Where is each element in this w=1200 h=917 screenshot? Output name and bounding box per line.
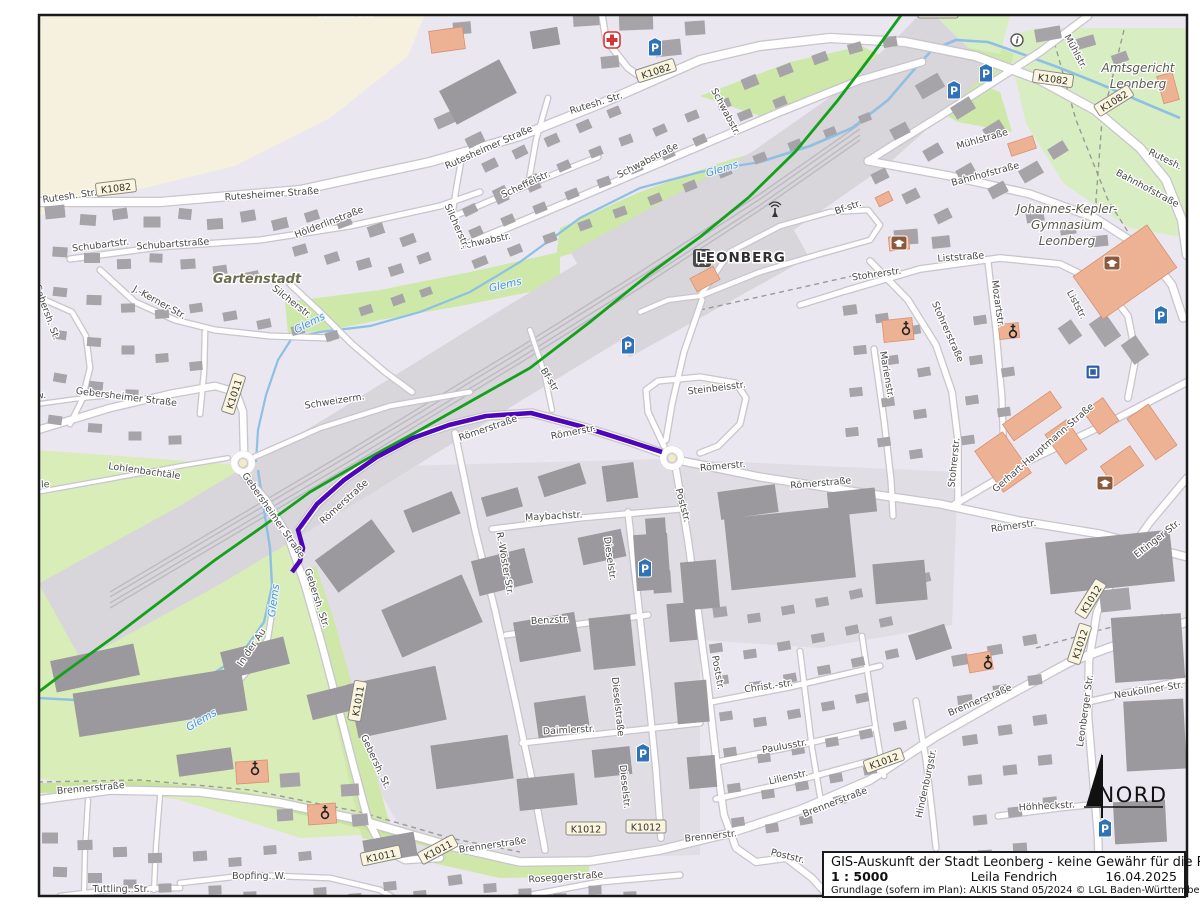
parking-icon: P — [639, 559, 652, 578]
svg-text:P: P — [950, 85, 958, 98]
roundabout — [232, 452, 254, 474]
place-label: Gymnasium — [1031, 218, 1103, 232]
road-label: Benzstr. — [531, 614, 570, 627]
svg-text:P: P — [639, 748, 647, 761]
parking-icon: P — [1155, 306, 1168, 325]
place-label: Leonberg — [1039, 234, 1096, 248]
town-label: Gartenstadt — [213, 272, 302, 287]
school-icon — [1104, 256, 1120, 270]
blue-square-icon — [1086, 365, 1100, 379]
school-icon — [891, 236, 907, 250]
parking-icon: P — [622, 336, 635, 355]
svg-text:P: P — [651, 42, 659, 55]
map-source-note: Grundlage (sofern im Plan): ALKIS Stand … — [831, 885, 1177, 896]
info-icon: i — [1011, 34, 1023, 46]
parking-icon: P — [1099, 819, 1112, 838]
place-label: Amtsgericht — [1100, 61, 1175, 75]
svg-text:P: P — [624, 340, 632, 353]
map-layers: PPPPPPPPiRütesh. Str.WhA ClausenmühleRut… — [2, 0, 1187, 908]
north-arrow-label: NORD — [1099, 783, 1168, 807]
svg-text:P: P — [1157, 310, 1165, 323]
parking-icon: P — [980, 64, 993, 83]
hospital-icon — [604, 32, 620, 48]
school-icon — [1097, 476, 1113, 490]
parking-icon: P — [948, 81, 961, 100]
svg-text:P: P — [1101, 823, 1109, 836]
map-author: Leila Fendrich — [941, 870, 1087, 884]
road-label: Bopfing. W. — [232, 871, 286, 882]
svg-text:P: P — [641, 563, 649, 576]
svg-text:K1012: K1012 — [571, 825, 601, 836]
gis-map-page: PPPPPPPPiRütesh. Str.WhA ClausenmühleRut… — [0, 0, 1200, 917]
map-scale: 1 : 5000 — [831, 870, 941, 884]
map-disclaimer: GIS-Auskunft der Stadt Leonberg - keine … — [831, 855, 1177, 870]
map-date: 16.04.2025 — [1087, 870, 1177, 884]
parking-icon: P — [649, 38, 662, 57]
svg-text:K1012: K1012 — [631, 823, 661, 834]
place-label: Johannes-Kepler- — [1015, 202, 1118, 216]
road-label: Tuttling. Str. — [91, 884, 149, 895]
map-canvas[interactable]: PPPPPPPPiRütesh. Str.WhA ClausenmühleRut… — [0, 0, 1200, 917]
parking-icon: P — [637, 744, 650, 763]
station-label: LEONBERG — [696, 250, 786, 266]
map-info-box: GIS-Auskunft der Stadt Leonberg - keine … — [822, 851, 1186, 898]
roundabout — [661, 447, 683, 469]
road-shield: K1012 — [566, 822, 606, 836]
road-shield: K1012 — [626, 820, 666, 834]
place-label: Leonberg — [1110, 77, 1167, 91]
svg-text:P: P — [982, 68, 990, 81]
